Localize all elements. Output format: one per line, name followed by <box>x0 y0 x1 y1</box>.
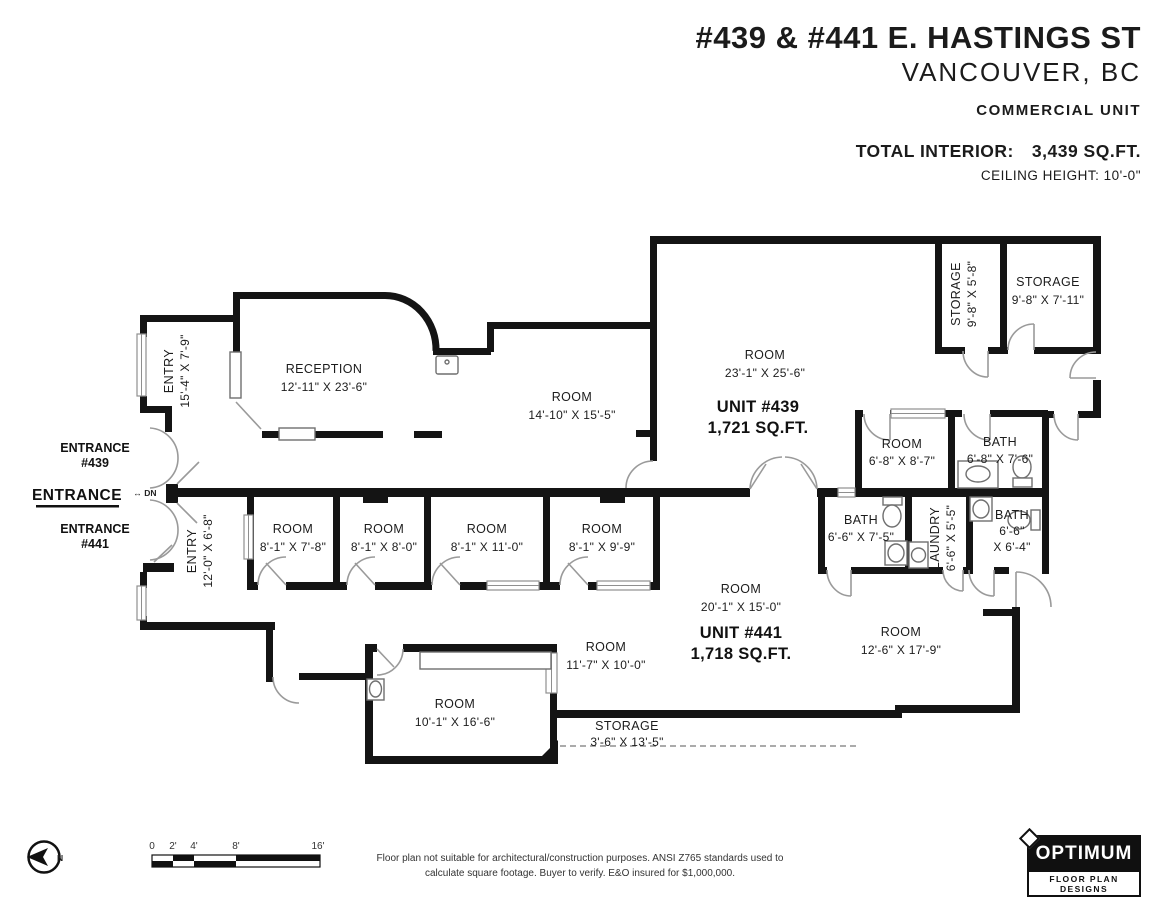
floor-plan-page: #439 & #441 E. HASTINGS ST VANCOUVER, BC… <box>0 0 1165 900</box>
scale-tick: 2' <box>169 841 177 852</box>
label-entry439-name: ENTRY <box>162 349 176 393</box>
label-roomD-dims: 8'-1" X 9'-9" <box>569 540 635 554</box>
label-unit439-name: UNIT #439 <box>717 398 800 416</box>
label-roomC-dims: 8'-1" X 11'-0" <box>451 540 523 554</box>
disclaimer: Floor plan not suitable for architectura… <box>310 852 850 881</box>
entrance-main-label: ENTRANCE <box>32 487 122 504</box>
label-storageB-name: STORAGE <box>1016 275 1080 289</box>
label-room117-name: ROOM <box>586 640 627 654</box>
scale-tick: 0 <box>149 841 155 852</box>
label-room101-dims: 10'-1" X 16'-6" <box>415 715 495 729</box>
label-laundry-dims: 6'-6" X 5'-5" <box>944 505 958 571</box>
label-unit439-area: 1,721 SQ.FT. <box>708 419 809 437</box>
label-storageA-name: STORAGE <box>949 262 963 326</box>
entrance-441-line1: ENTRANCE <box>60 522 129 536</box>
label-storageA-dims: 9'-8" X 5'-8" <box>965 261 979 327</box>
label-roomC-name: ROOM <box>467 522 508 536</box>
door-leaf <box>230 352 241 398</box>
logo-tagline: FLOOR PLAN DESIGNS <box>1027 872 1141 897</box>
label-bathR-dims1: 6'-6" <box>999 524 1024 538</box>
label-room-mid-name: ROOM <box>552 390 593 404</box>
label-roomD-name: ROOM <box>582 522 623 536</box>
label-storageB-dims: 9'-8" X 7'-11" <box>1012 293 1084 307</box>
label-room101-name: ROOM <box>435 697 476 711</box>
label-bathL-name: BATH <box>844 513 878 527</box>
label-room441-dims: 20'-1" X 15'-0" <box>701 600 781 614</box>
label-bath439-name: BATH <box>983 435 1017 449</box>
label-reception-name: RECEPTION <box>286 362 363 376</box>
sink-reception <box>436 356 458 374</box>
label-bathR-dims2: X 6'-4" <box>993 540 1030 554</box>
room101-counter <box>420 652 551 669</box>
floor-plan-drawing: ENTRY 15'-4" X 7'-9" RECEPTION 12'-11" X… <box>0 0 1165 900</box>
label-room-mid-dims: 14'-10" X 15'-5" <box>528 408 615 422</box>
entrance-439-line1: ENTRANCE <box>60 441 129 455</box>
label-room68-dims: 6'-8" X 8'-7" <box>869 454 935 468</box>
label-room126-name: ROOM <box>881 625 922 639</box>
entrance-underline <box>36 505 119 508</box>
label-unit441-name: UNIT #441 <box>700 624 783 642</box>
scale-bar: 0 2' 4' 8' 16' <box>149 841 324 867</box>
entrance-439-line2: #439 <box>81 456 109 470</box>
reception-desk <box>279 428 315 440</box>
label-storageC-dims: 3'-6" X 13'-5" <box>590 735 663 749</box>
label-entry441-name: ENTRY <box>185 529 199 573</box>
compass: N <box>27 842 63 873</box>
entrance-441-line2: #441 <box>81 537 109 551</box>
label-roomA-name: ROOM <box>273 522 314 536</box>
label-room117-dims: 11'-7" X 10'-0" <box>566 658 645 672</box>
label-roomB-name: ROOM <box>364 522 405 536</box>
label-room441-name: ROOM <box>721 582 762 596</box>
label-unit441-area: 1,718 SQ.FT. <box>691 645 792 663</box>
scale-tick: 16' <box>311 841 324 852</box>
logo-box: OPTIMUM <box>1027 835 1141 872</box>
compass-north-label: N <box>57 853 63 863</box>
disclaimer-line1: Floor plan not suitable for architectura… <box>310 852 850 867</box>
disclaimer-line2: calculate square footage. Buyer to verif… <box>310 867 850 882</box>
label-entry441-dims: 12'-0" X 6'-8" <box>201 514 215 587</box>
label-room126-dims: 12'-6" X 17'-9" <box>861 643 941 657</box>
scale-tick: 8' <box>232 841 240 852</box>
label-entry439-dims: 15'-4" X 7'-9" <box>178 334 192 407</box>
label-bathR-name: BATH <box>995 508 1029 522</box>
label-laundry-name: LAUNDRY <box>928 507 942 570</box>
label-room68-name: ROOM <box>882 437 923 451</box>
label-bath439-dims: 6'-8" X 7'-6" <box>967 452 1033 466</box>
label-room439-name: ROOM <box>745 348 786 362</box>
label-roomA-dims: 8'-1" X 7'-8" <box>260 540 326 554</box>
label-storageC-name: STORAGE <box>595 719 659 733</box>
label-room439-dims: 23'-1" X 25'-6" <box>725 366 805 380</box>
label-roomB-dims: 8'-1" X 8'-0" <box>351 540 417 554</box>
bathR-toilet <box>1031 510 1040 530</box>
bathL-toilet <box>883 497 902 505</box>
company-logo: OPTIMUM FLOOR PLAN DESIGNS <box>1027 835 1141 897</box>
down-indicator: ↔ DN <box>133 488 156 498</box>
label-reception-dims: 12'-11" X 23'-6" <box>281 380 367 394</box>
label-bathL-dims: 6'-6" X 7'-5" <box>828 530 894 544</box>
scale-tick: 4' <box>190 841 198 852</box>
logo-name: OPTIMUM <box>1036 843 1133 865</box>
